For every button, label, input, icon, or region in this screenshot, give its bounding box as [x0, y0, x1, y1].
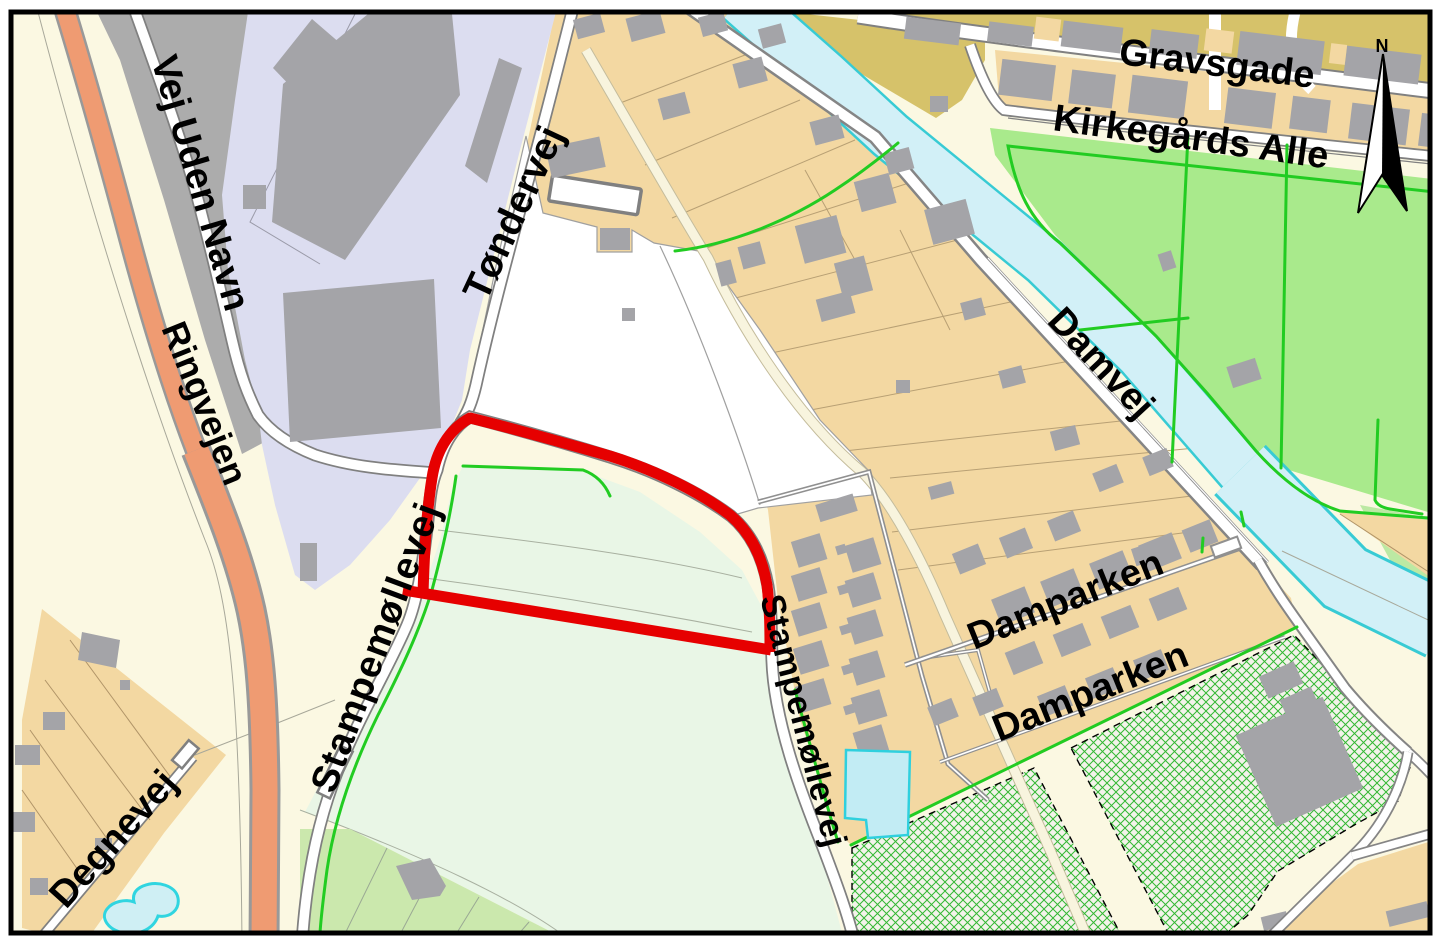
svg-text:N: N — [1376, 36, 1389, 56]
